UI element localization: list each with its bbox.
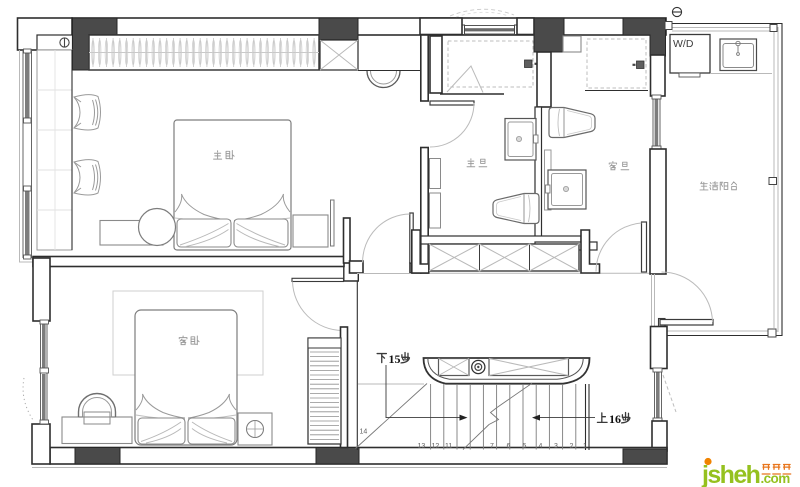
svg-text:16: 16 [609,412,621,426]
svg-text:13: 13 [418,443,426,450]
svg-text:3: 3 [554,443,558,450]
svg-text:7: 7 [490,443,494,450]
svg-text:2: 2 [570,443,574,450]
svg-text:4: 4 [539,443,543,450]
svg-text:W/D: W/D [673,38,694,50]
svg-text:jsheh: jsheh [701,461,760,487]
svg-text:14: 14 [360,429,368,436]
svg-text:15: 15 [389,352,401,366]
svg-text:11: 11 [445,443,452,450]
svg-text:1: 1 [583,443,587,450]
svg-text:6: 6 [507,443,511,450]
svg-text:.com: .com [761,471,791,486]
svg-text:5: 5 [523,443,527,450]
svg-text:12: 12 [432,443,440,450]
